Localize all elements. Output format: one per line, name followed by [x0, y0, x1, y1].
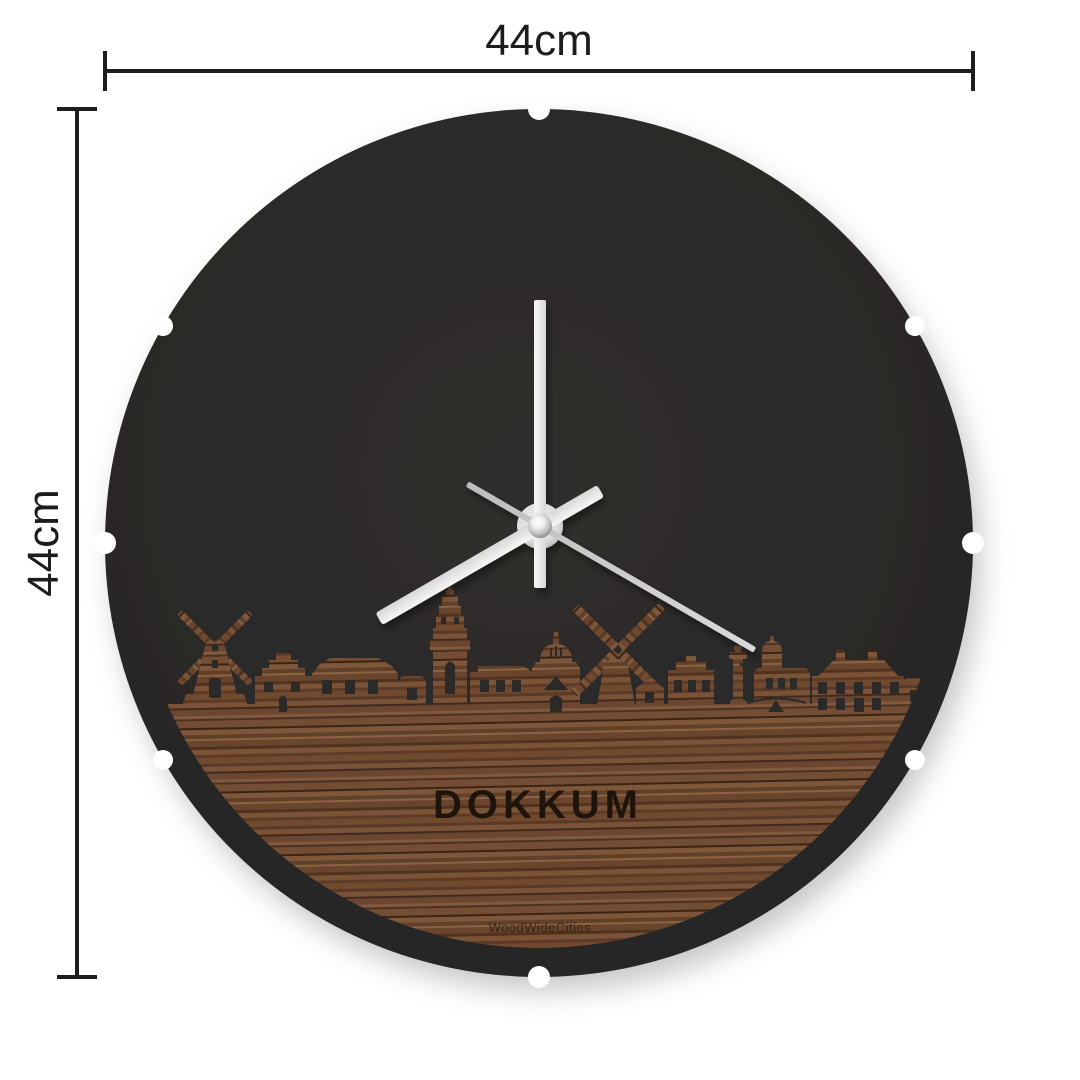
notch-left — [94, 532, 116, 554]
notch-upper-left — [153, 316, 173, 336]
height-dimension-label: 44cm — [19, 489, 68, 597]
hub-cap — [528, 514, 552, 538]
notch-lower-left — [153, 750, 173, 770]
width-dimension-label: 44cm — [485, 16, 593, 65]
city-name-cutout: DOKKUM — [433, 783, 643, 827]
width-dimension: 44cm — [105, 16, 973, 91]
notch-top — [528, 98, 550, 120]
brand-engraving: WoodWideCities — [489, 920, 592, 935]
clock-dimension-drawing: 44cm 44cm — [0, 0, 1080, 1080]
notch-right — [962, 532, 984, 554]
product-dimension-image: 44cm 44cm — [0, 0, 1080, 1080]
notch-upper-right — [905, 316, 925, 336]
minute-hand — [534, 300, 546, 588]
height-dimension: 44cm — [19, 109, 97, 977]
wall-clock: DOKKUM WoodWideCities — [94, 98, 984, 988]
notch-bottom — [528, 966, 550, 988]
notch-lower-right — [905, 750, 925, 770]
